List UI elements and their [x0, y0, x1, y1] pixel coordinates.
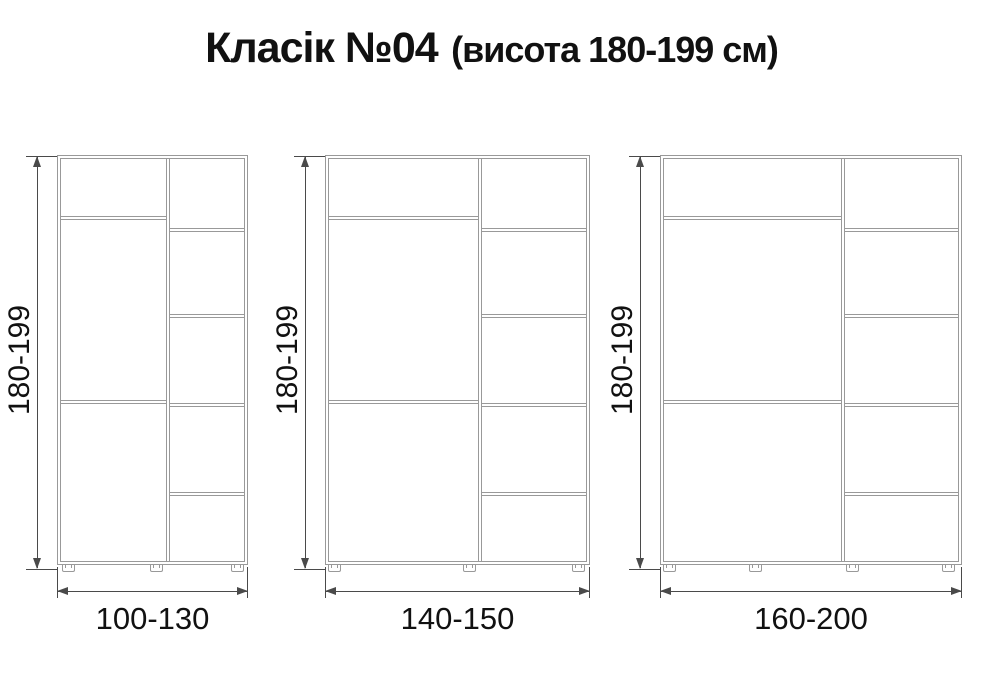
- width-dimension-line: [661, 591, 961, 592]
- dimension-arrow-left-icon: [57, 587, 68, 595]
- width-dimension-label: 160-200: [630, 601, 983, 637]
- dimension-arrow-up-icon: [33, 156, 41, 167]
- height-extension-tick-top: [294, 156, 325, 157]
- shelf-line-left-column: [329, 216, 478, 220]
- height-extension-tick-bottom: [26, 569, 57, 570]
- shelf-line-right-column: [482, 403, 586, 407]
- shelf-line-right-column: [845, 492, 958, 496]
- cabinet-foot: [463, 565, 476, 572]
- shelf-line-left-column: [664, 216, 841, 220]
- cabinet-divider: [478, 159, 482, 561]
- shelf-line-left-column: [61, 216, 166, 220]
- dimension-arrow-up-icon: [636, 156, 644, 167]
- cabinet-foot: [942, 565, 955, 572]
- title-main: Класік №04: [205, 24, 438, 72]
- shelf-line-left-column: [664, 400, 841, 404]
- dimension-arrow-right-icon: [579, 587, 590, 595]
- cabinet-foot: [846, 565, 859, 572]
- cabinet-divider: [166, 159, 170, 561]
- cabinet-foot: [749, 565, 762, 572]
- width-dimension-line: [326, 591, 589, 592]
- height-extension-tick-top: [629, 156, 660, 157]
- shelf-line-right-column: [482, 228, 586, 232]
- dimension-arrow-right-icon: [237, 587, 248, 595]
- dimension-arrow-left-icon: [325, 587, 336, 595]
- shelf-line-right-column: [170, 228, 244, 232]
- page-title: Класік №04 (висота 180-199 см): [0, 24, 983, 73]
- shelf-line-right-column: [170, 314, 244, 318]
- shelf-line-left-column: [61, 400, 166, 404]
- cabinet-foot: [231, 565, 244, 572]
- dimension-arrow-down-icon: [301, 558, 309, 569]
- cabinet-foot: [62, 565, 75, 572]
- dimension-arrow-right-icon: [951, 587, 962, 595]
- cabinet-divider: [841, 159, 845, 561]
- shelf-line-right-column: [482, 492, 586, 496]
- title-suffix: (висота 180-199 см): [451, 29, 778, 70]
- cabinet-foot: [150, 565, 163, 572]
- width-dimension-label: 140-150: [295, 601, 620, 637]
- wardrobe-diagram-1: 180-199100-130: [57, 155, 248, 565]
- dimension-arrow-down-icon: [33, 558, 41, 569]
- height-dimension-label: 180-199: [3, 305, 37, 415]
- dimension-arrow-left-icon: [660, 587, 671, 595]
- height-extension-tick-bottom: [294, 569, 325, 570]
- height-extension-tick-bottom: [629, 569, 660, 570]
- height-dimension-line: [37, 157, 38, 568]
- width-dimension-line: [58, 591, 247, 592]
- height-dimension-label: 180-199: [606, 305, 640, 415]
- width-dimension-label: 100-130: [27, 601, 278, 637]
- cabinet-foot: [328, 565, 341, 572]
- dimension-arrow-down-icon: [636, 558, 644, 569]
- shelf-line-right-column: [845, 228, 958, 232]
- height-dimension-line: [640, 157, 641, 568]
- shelf-line-right-column: [845, 314, 958, 318]
- shelf-line-right-column: [170, 492, 244, 496]
- wardrobe-diagram-2: 180-199140-150: [325, 155, 590, 565]
- shelf-line-right-column: [845, 403, 958, 407]
- shelf-line-left-column: [329, 400, 478, 404]
- shelf-line-right-column: [170, 403, 244, 407]
- height-extension-tick-top: [26, 156, 57, 157]
- dimension-arrow-up-icon: [301, 156, 309, 167]
- shelf-line-right-column: [482, 314, 586, 318]
- height-dimension-label: 180-199: [271, 305, 305, 415]
- cabinet-foot: [663, 565, 676, 572]
- height-dimension-line: [305, 157, 306, 568]
- diagram-canvas: Класік №04 (висота 180-199 см) 180-19910…: [0, 0, 983, 700]
- cabinet-foot: [572, 565, 585, 572]
- wardrobe-diagram-3: 180-199160-200: [660, 155, 962, 565]
